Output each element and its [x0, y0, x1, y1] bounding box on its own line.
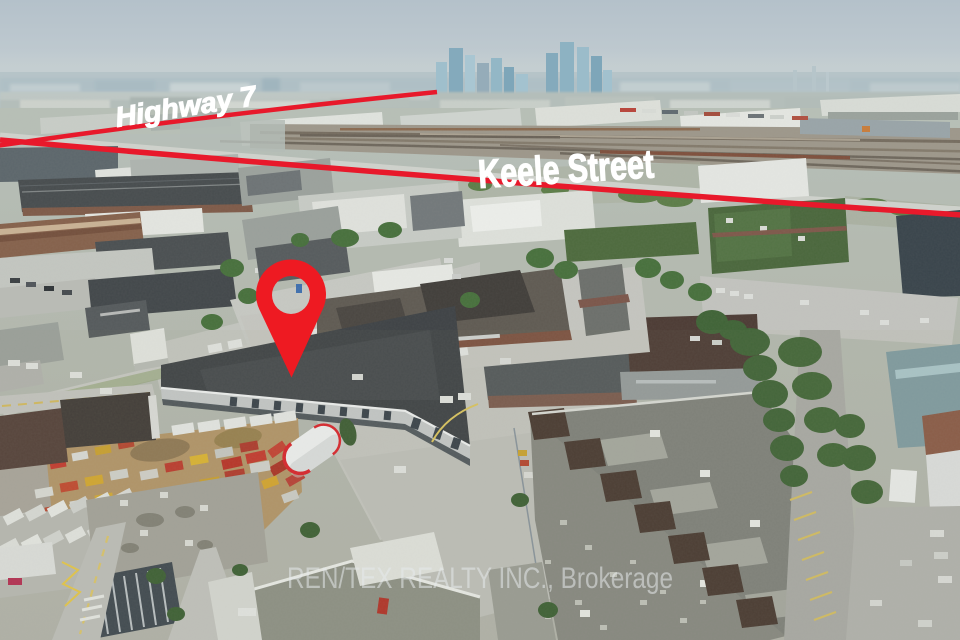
svg-text:REN/TEX REALTY INC., Brokerage: REN/TEX REALTY INC., Brokerage: [287, 562, 673, 595]
